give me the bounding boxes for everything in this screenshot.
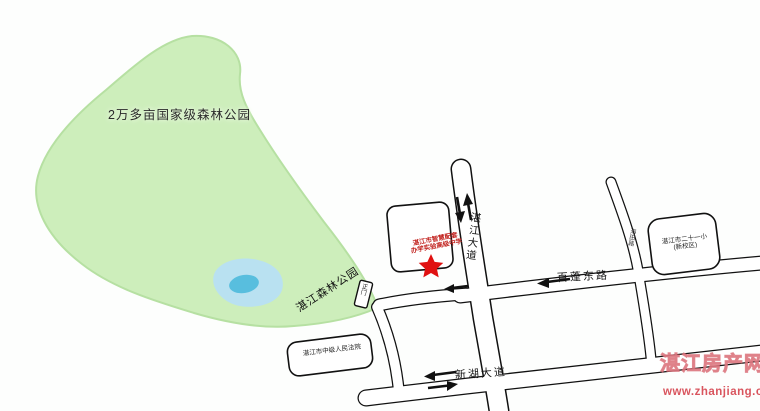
map-canvas: 2万多亩国家级森林公园 湛江森林公园 正门 湛江市智慧配套 办学实验高级中学 湛…: [0, 0, 760, 411]
watermark-site-name: 湛江房产网: [660, 352, 760, 375]
watermark-site-url: www.zhanjiang.cc: [663, 386, 760, 399]
map-graphics: [0, 0, 760, 411]
park-name-label: 2万多亩国家级森林公园: [108, 108, 251, 122]
